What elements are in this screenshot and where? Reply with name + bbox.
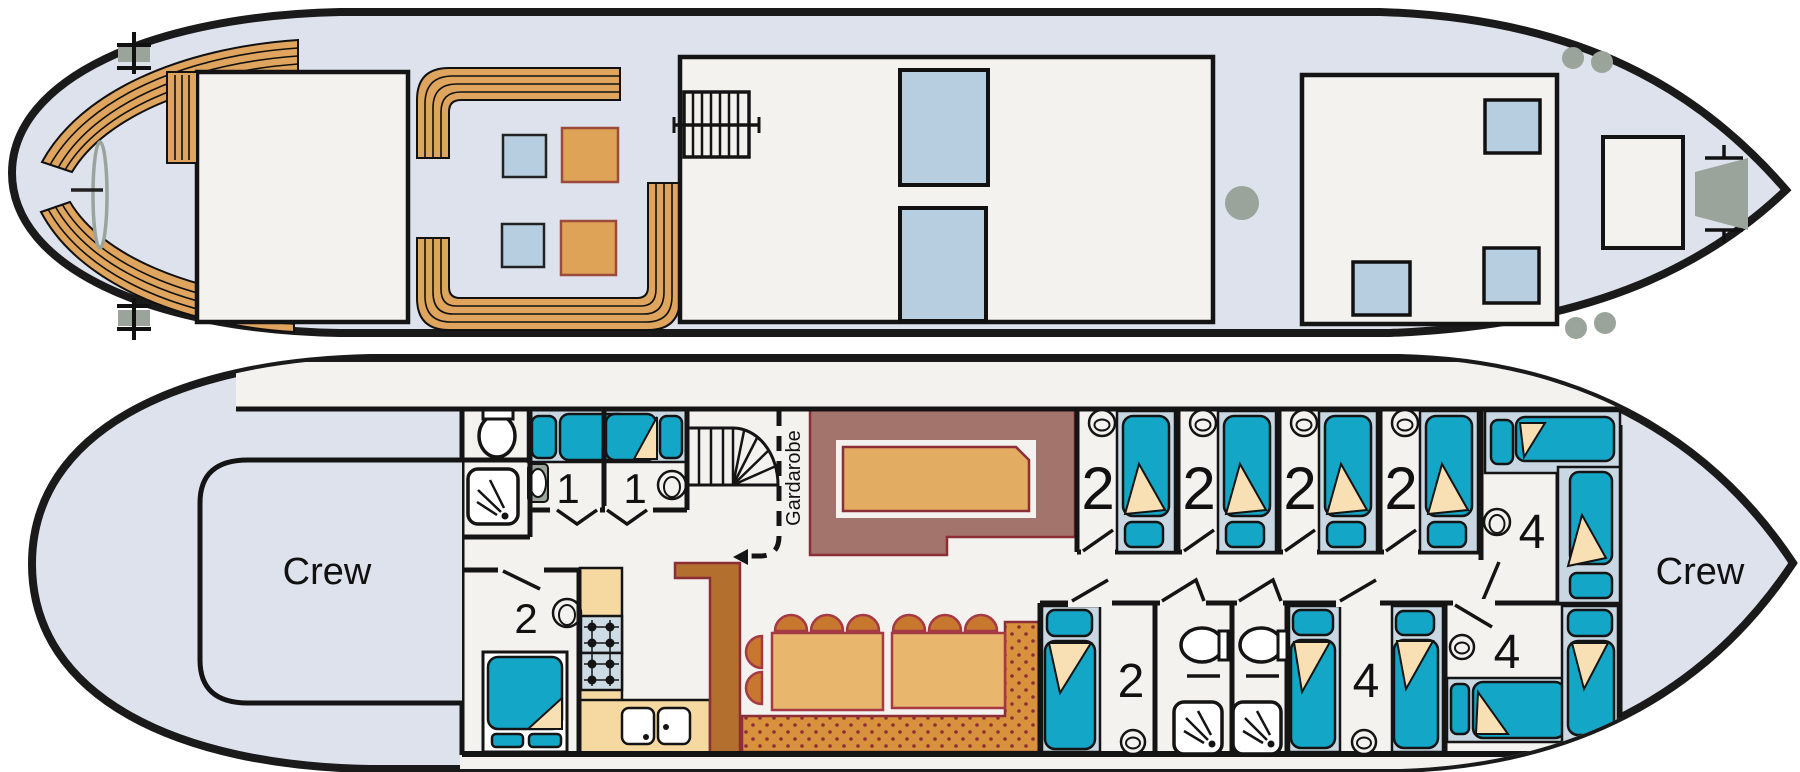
- deck-table-wood: [561, 221, 616, 275]
- cabin-single-1-label: 1: [556, 465, 579, 512]
- washbasin-icon: [658, 471, 686, 499]
- dining-table: [772, 633, 883, 710]
- cabin-quad-upper-fore-label: 4: [1519, 506, 1546, 559]
- bollard-icon: [1565, 317, 1587, 339]
- deck-table-blue: [503, 135, 546, 177]
- cabin-double-label: 2: [514, 595, 537, 642]
- sun-bench-side: [167, 72, 197, 163]
- crew-fore-label: Crew: [1656, 551, 1745, 593]
- cabin-quad-mid-label: 4: [1353, 655, 1380, 708]
- skylight: [900, 208, 986, 321]
- bow-hatch: [1603, 137, 1683, 248]
- deck-table-blue: [502, 224, 544, 267]
- bollard-icon: [117, 298, 151, 340]
- bollard-icon: [1562, 47, 1584, 69]
- stove-icon: [581, 616, 622, 690]
- crew-aft-label: Crew: [283, 551, 372, 593]
- dining-area: [742, 615, 1040, 752]
- cabin-twin-2-label: 2: [1182, 455, 1215, 522]
- skylight: [900, 70, 988, 185]
- cabin-twin-1-label: 2: [1081, 455, 1114, 522]
- cabin-quad-fore-label: 4: [1494, 626, 1521, 679]
- cabin-single-2-label: 1: [623, 465, 646, 512]
- cabin-twin-5-label: 2: [1118, 655, 1145, 708]
- bollard-icon: [1591, 51, 1613, 73]
- funnel-icon: [1225, 186, 1259, 220]
- dining-table: [892, 633, 1005, 708]
- wardrobe-label: Gardarobe: [783, 430, 805, 526]
- skylight: [1353, 262, 1410, 315]
- shower-icon: [468, 469, 518, 524]
- cabin-twin-3-label: 2: [1283, 455, 1316, 522]
- cabin-double-bed: [483, 652, 567, 752]
- skylight: [1484, 248, 1539, 303]
- upper-deck: [12, 12, 1786, 340]
- toilet-icon: [479, 409, 515, 457]
- cabin-twin-4-label: 2: [1384, 455, 1417, 522]
- deckhouse-aft: [197, 72, 408, 322]
- cabin-single-beds: [528, 410, 688, 462]
- bar-counter: [810, 409, 1075, 555]
- lower-deck: Crew Crew Gardarobe 1 1 2 2 2 2 2 2 4 4 …: [32, 358, 1793, 770]
- skylight: [1485, 100, 1540, 153]
- stairs-icon: [674, 92, 759, 157]
- deck-plan: Crew Crew Gardarobe 1 1 2 2 2 2 2 2 4 4 …: [0, 0, 1800, 772]
- deck-table-wood: [562, 128, 618, 182]
- bollard-icon: [1594, 312, 1616, 334]
